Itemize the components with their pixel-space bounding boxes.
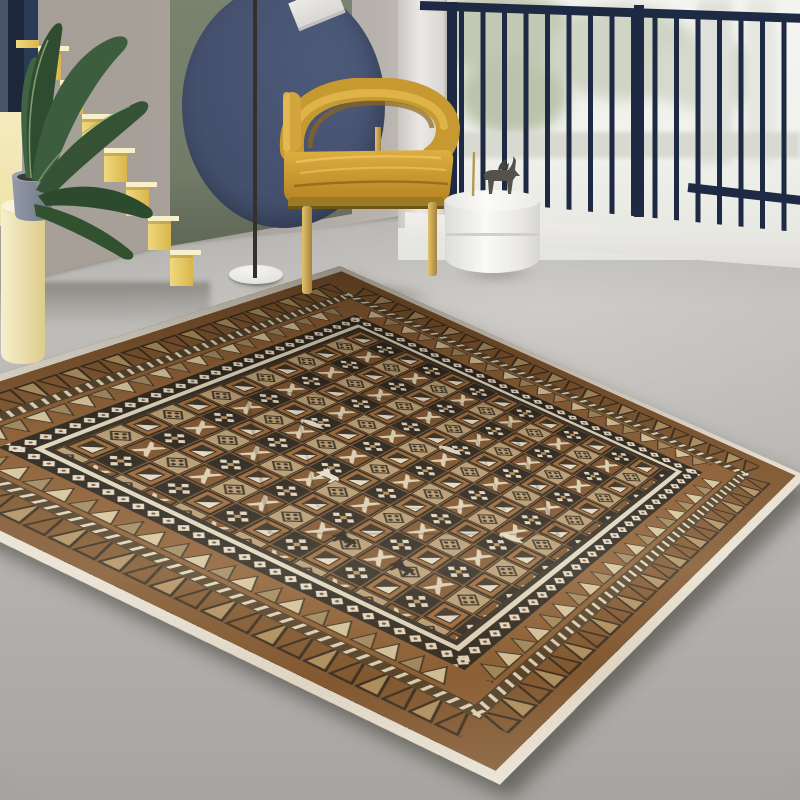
lamp-pole — [253, 0, 257, 278]
plant — [0, 0, 190, 380]
figurine-animal — [484, 156, 520, 194]
side-table-groove — [446, 233, 539, 236]
chair-legs — [302, 202, 437, 294]
figurine-rider — [498, 159, 509, 170]
chair-back — [283, 89, 448, 157]
figurine — [468, 148, 528, 200]
plant-pedestal — [1, 199, 45, 364]
figurine-rod — [473, 152, 474, 196]
chair-seat — [284, 150, 453, 209]
photo-stage — [0, 0, 800, 800]
armchair — [276, 78, 472, 300]
